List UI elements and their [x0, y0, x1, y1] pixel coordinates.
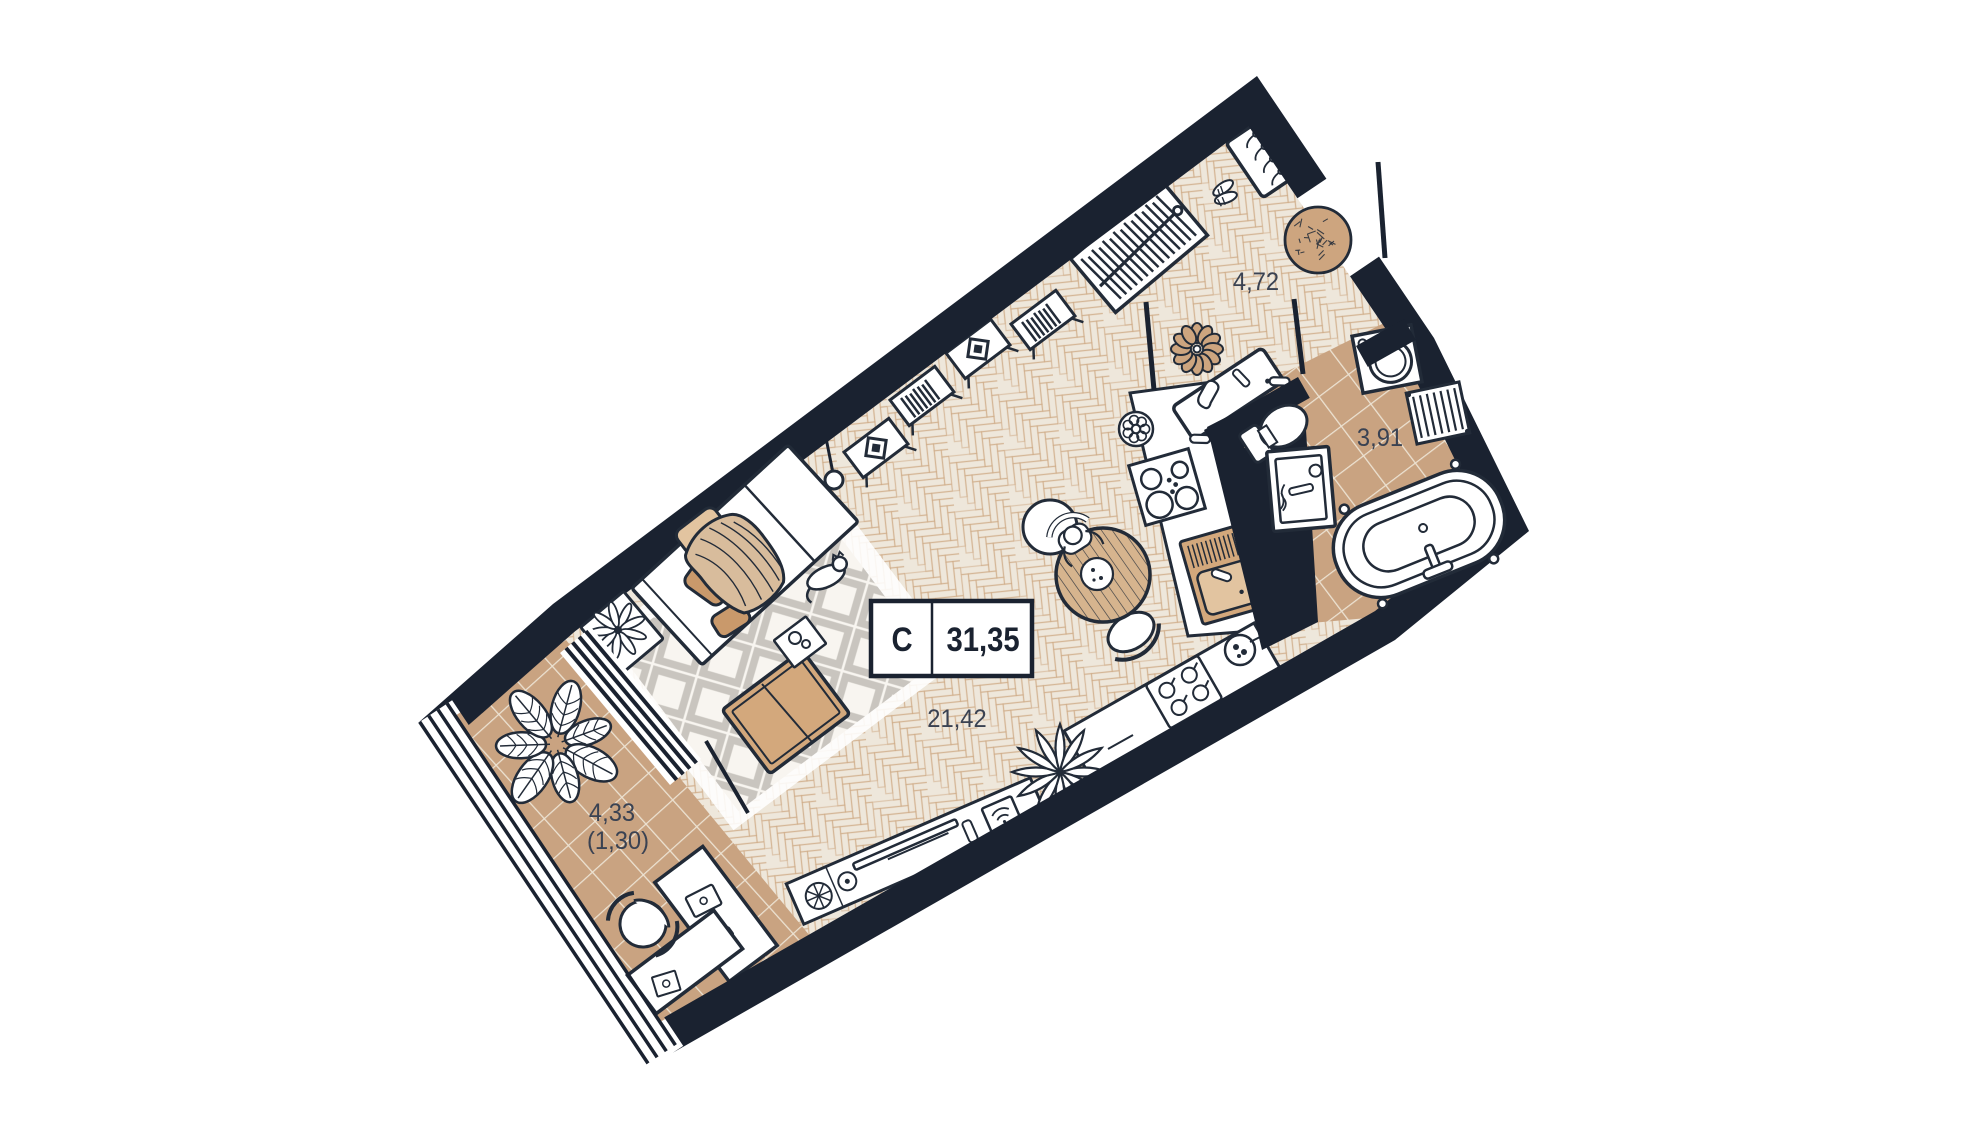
svg-text:4,72: 4,72 [1233, 268, 1279, 296]
svg-text:4,33: 4,33 [589, 799, 635, 827]
svg-text:21,42: 21,42 [927, 705, 986, 733]
svg-text:31,35: 31,35 [946, 620, 1019, 659]
svg-text:3,91: 3,91 [1357, 424, 1403, 452]
svg-text:С: С [891, 620, 912, 659]
svg-text:(1,30): (1,30) [587, 827, 649, 855]
